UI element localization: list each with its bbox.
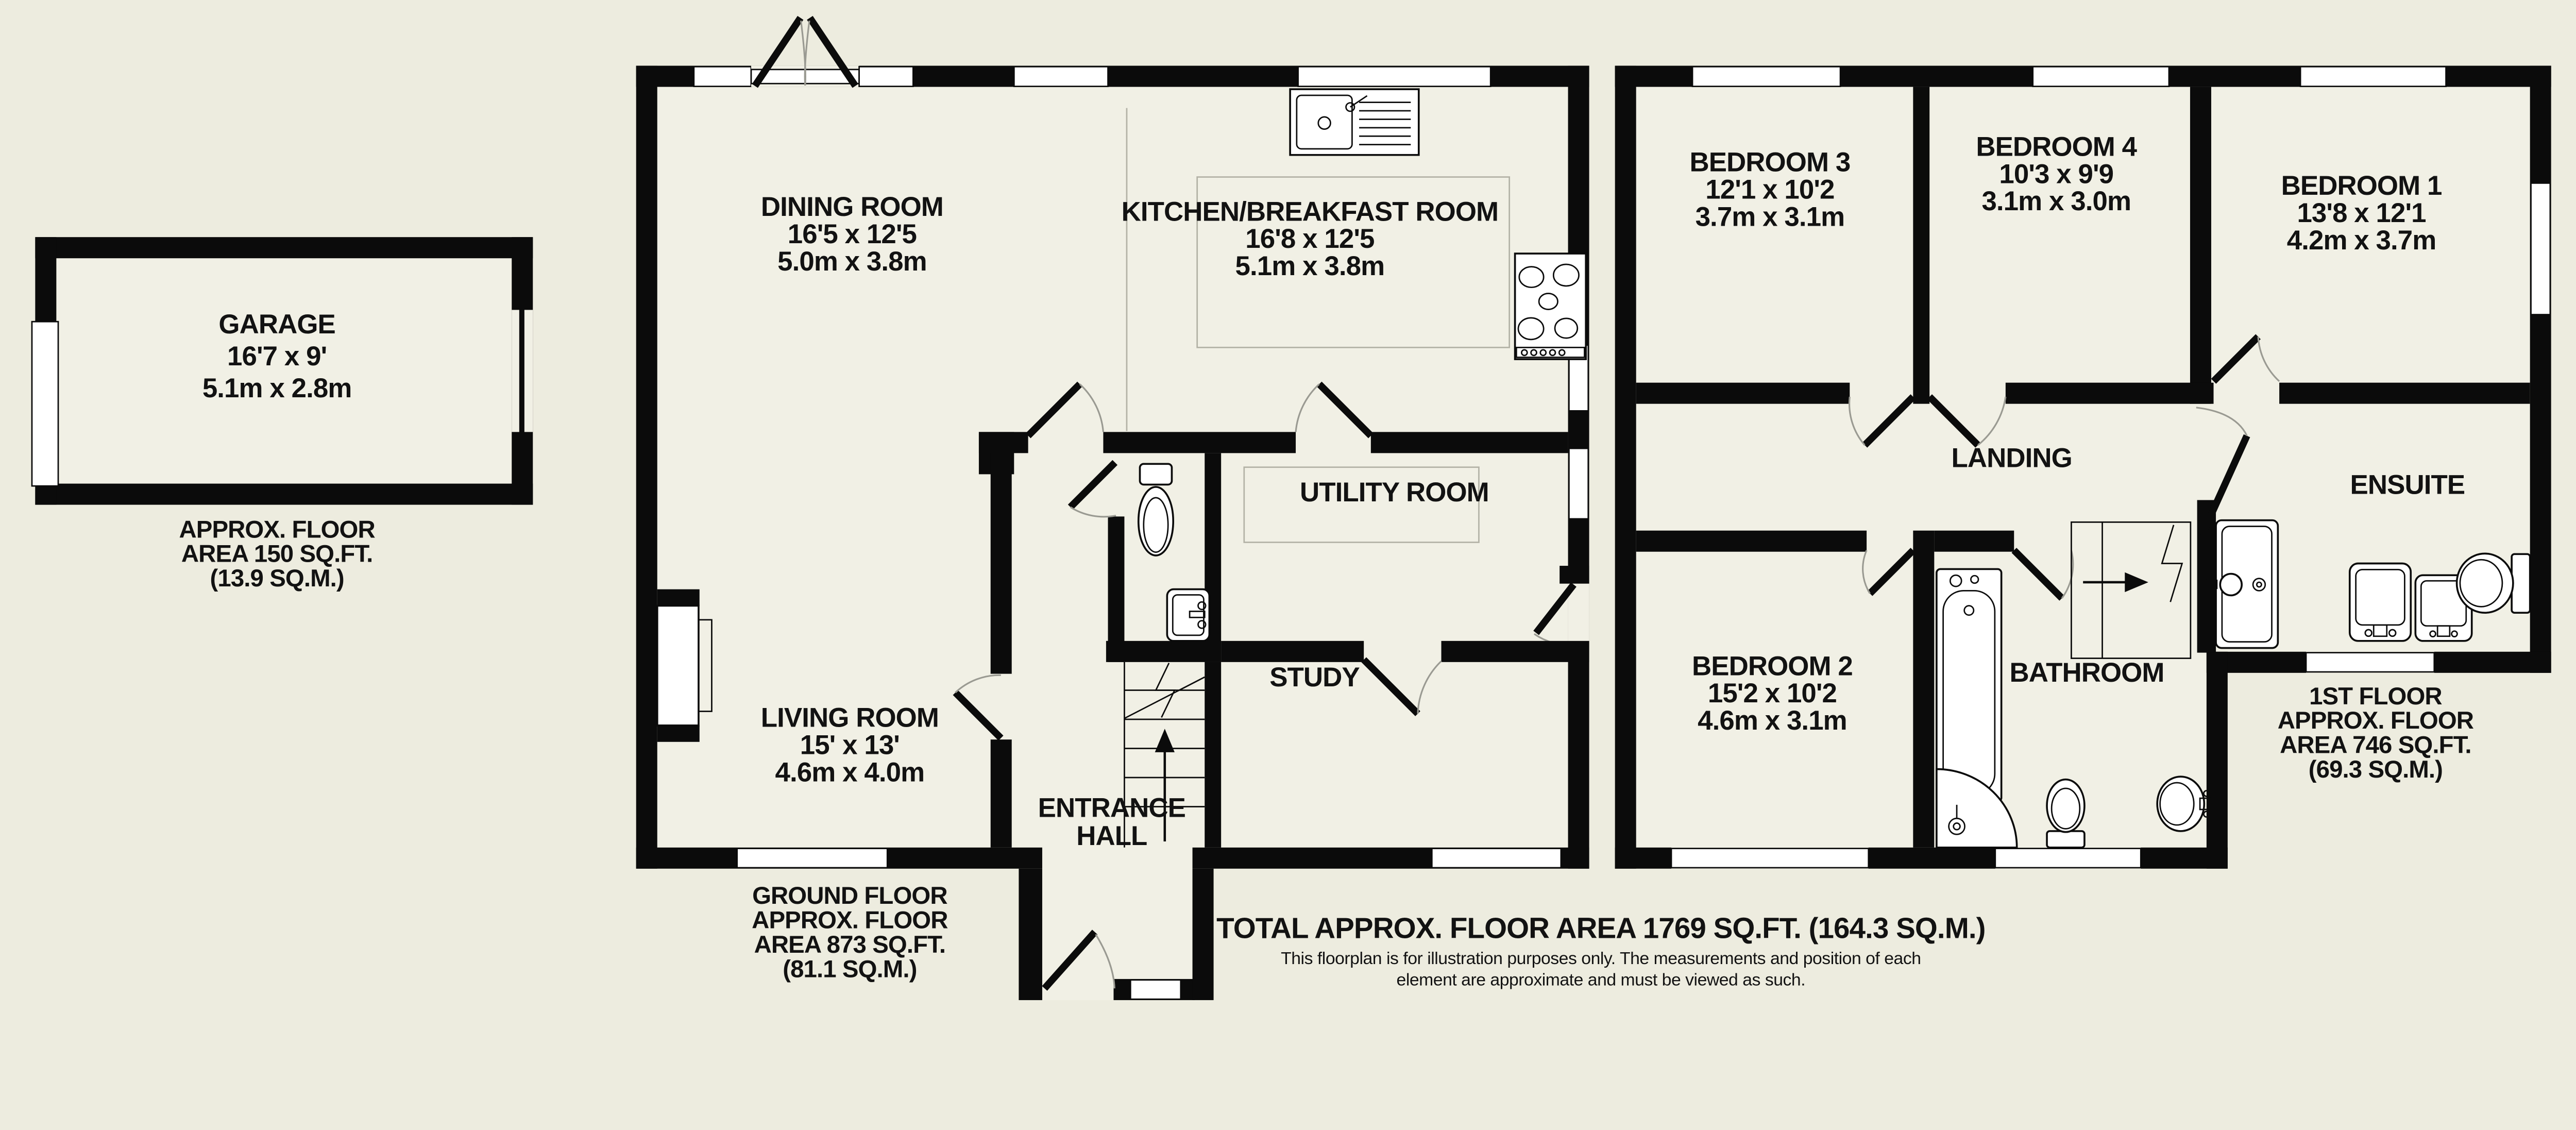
floorplan-page: GARAGE 16'7 x 9' 5.1m x 2.8m APPROX. FLO… — [0, 0, 2576, 1030]
room-label-living: LIVING ROOM — [761, 703, 939, 733]
ff-wall-bottom-left-3 — [2141, 848, 2228, 869]
gf-wall-living-hall-lower — [991, 739, 1012, 848]
gf-wall-living-hall-upper — [991, 453, 1012, 673]
room-label-study: STUDY — [1269, 662, 1360, 693]
living-imperial: 15' x 13' — [800, 730, 900, 760]
garage-wall-top — [35, 237, 533, 258]
bedroom3-imperial: 12'1 x 10'2 — [1705, 174, 1834, 205]
bedroom3-window — [1692, 66, 1840, 86]
gf-note-4: (81.1 SQ.M.) — [783, 955, 917, 983]
basin-icon — [1167, 589, 1209, 641]
dining-imperial: 16'5 x 12'5 — [788, 219, 917, 249]
porch-wall-right — [1193, 869, 1214, 1000]
room-label-ensuite: ENSUITE — [2350, 470, 2465, 500]
bedroom1-metric: 4.2m x 3.7m — [2287, 225, 2436, 256]
wc-wall-bottom — [1106, 641, 1221, 662]
fireplace-cap-top — [657, 589, 700, 606]
bedroom4-metric: 3.1m x 3.0m — [1981, 186, 2131, 216]
garage-wall-bottom — [35, 484, 533, 505]
ground-floor: DINING ROOM 16'5 x 12'5 5.0m x 3.8m KITC… — [636, 18, 1589, 1000]
room-label-bedroom3: BEDROOM 3 — [1689, 147, 1850, 178]
garage: GARAGE 16'7 x 9' 5.1m x 2.8m APPROX. FLO… — [32, 237, 533, 592]
sink-icon — [1290, 89, 1419, 155]
b3-b4-divider — [1913, 87, 1929, 404]
ff-note-1: 1ST FLOOR — [2309, 683, 2442, 710]
ff-wall-step — [2207, 652, 2228, 869]
kitchen-imperial: 16'8 x 12'5 — [1245, 224, 1374, 254]
fireplace-cap-bottom — [657, 726, 700, 742]
gf-note-1: GROUND FLOOR — [752, 882, 947, 909]
study-window — [1432, 849, 1561, 868]
room-label-bathroom: BATHROOM — [2010, 657, 2164, 688]
dining-window-right — [859, 66, 913, 86]
ff-note-4: (69.3 SQ.M.) — [2309, 756, 2443, 783]
bedroom2-window — [1671, 849, 1869, 868]
total-area-text: TOTAL APPROX. FLOOR AREA 1769 SQ.FT. (16… — [1216, 912, 1985, 945]
living-window — [737, 849, 888, 868]
room-label-bedroom4: BEDROOM 4 — [1976, 132, 2137, 162]
garage-door-window — [32, 322, 58, 486]
bedroom1-wall-left — [2190, 87, 2211, 404]
bathroom-toilet-icon — [2047, 780, 2084, 848]
room-label-garage: GARAGE — [218, 309, 335, 340]
bedroom1-window-side — [2531, 183, 2550, 314]
ensuite-window — [2306, 653, 2434, 672]
kitchen-window-top — [1298, 66, 1491, 86]
living-metric: 4.6m x 4.0m — [775, 757, 925, 787]
study-wall-top-left — [1221, 641, 1364, 662]
gf-note-2: APPROX. FLOOR — [752, 907, 948, 934]
ff-wall-left — [1615, 66, 1636, 869]
utility-window-side — [1569, 448, 1588, 519]
gf-wall-dining-1 — [979, 432, 1028, 453]
bedroom4-window — [2033, 66, 2169, 86]
fireplace-breast — [657, 606, 699, 726]
porch-window — [1130, 980, 1181, 999]
hob-icon — [1515, 254, 1586, 359]
room-label-entrance-2: HALL — [1076, 821, 1147, 851]
floorplan-svg: GARAGE 16'7 x 9' 5.1m x 2.8m APPROX. FLO… — [0, 0, 2576, 1030]
wc-wall-left — [1108, 516, 1125, 662]
ff-wall-bottom-right-2 — [2434, 652, 2551, 673]
dining-metric: 5.0m x 3.8m — [777, 246, 927, 277]
ff-wall-bottom-left-1 — [1615, 848, 1671, 869]
room-label-entrance-1: ENTRANCE — [1038, 793, 1185, 823]
bathroom-wall-top — [1934, 531, 2014, 552]
ff-note-2: APPROX. FLOOR — [2278, 707, 2474, 734]
disclaimer-line-2: element are approximate and must be view… — [1397, 970, 1806, 990]
bedroom3-wall-bottom — [1636, 383, 1850, 404]
bedroom1-window-top — [2300, 66, 2446, 86]
bedroom2-wall-top — [1636, 531, 1867, 552]
room-label-dining: DINING ROOM — [761, 192, 943, 222]
garage-note-2: AREA 150 SQ.FT. — [181, 541, 373, 568]
kitchen-window-left — [1014, 66, 1108, 86]
garage-imperial: 16'7 x 9' — [227, 341, 327, 372]
ff-wall-bottom-left-2 — [1869, 848, 1995, 869]
study-wall-top-right — [1442, 641, 1589, 662]
footer: TOTAL APPROX. FLOOR AREA 1769 SQ.FT. (16… — [1216, 912, 1985, 990]
bathroom-window — [1995, 849, 2141, 868]
ff-wall-right — [2530, 66, 2551, 673]
ensuite-toilet-icon — [2457, 553, 2530, 613]
room-label-bedroom1: BEDROOM 1 — [2281, 171, 2442, 201]
shower-icon — [2207, 520, 2278, 648]
garage-wall-right-thin — [519, 308, 524, 434]
room-label-utility: UTILITY ROOM — [1300, 477, 1489, 508]
dining-window-left — [694, 66, 751, 86]
b2-bath-divider — [1913, 531, 1934, 848]
ensuite-basin-icon-1 — [2350, 563, 2411, 640]
room-label-kitchen: KITCHEN/BREAKFAST ROOM — [1122, 196, 1499, 227]
stairs-wall-right — [1205, 662, 1221, 848]
bedroom4-imperial: 10'3 x 9'9 — [1999, 159, 2113, 189]
bedroom1-wall-bottom-1 — [2190, 383, 2214, 404]
first-floor: BEDROOM 3 12'1 x 10'2 3.7m x 3.1m BEDROO… — [1615, 66, 2551, 869]
bedroom3-metric: 3.7m x 3.1m — [1696, 201, 1845, 232]
bedroom2-imperial: 15'2 x 10'2 — [1708, 678, 1837, 709]
bathtub-icon — [1937, 569, 2002, 801]
gf-wall-dining-2 — [1103, 432, 1296, 453]
kitchen-metric: 5.1m x 3.8m — [1235, 251, 1385, 281]
bedroom4-wall-bottom — [2006, 383, 2191, 404]
gf-wall-kitchen-utility — [1371, 432, 1568, 453]
back-door-jamb — [1560, 566, 1589, 584]
ff-note-3: AREA 746 SQ.FT. — [2280, 732, 2471, 759]
disclaimer-line-1: This floorplan is for illustration purpo… — [1281, 949, 1921, 968]
garage-note-3: (13.9 SQ.M.) — [210, 565, 344, 592]
room-label-bedroom2: BEDROOM 2 — [1692, 651, 1853, 681]
garage-metric: 5.1m x 2.8m — [202, 373, 352, 403]
bedroom1-wall-bottom-2 — [2279, 383, 2530, 404]
garage-note-1: APPROX. FLOOR — [179, 516, 375, 543]
porch-wall-left — [1019, 869, 1042, 1000]
gf-wall-left — [636, 66, 657, 869]
toilet-icon — [1139, 464, 1173, 555]
bedroom2-metric: 4.6m x 3.1m — [1698, 705, 1847, 736]
bedroom1-imperial: 13'8 x 12'1 — [2297, 198, 2426, 228]
room-label-landing: LANDING — [1952, 443, 2072, 474]
gf-note-3: AREA 873 SQ.FT. — [754, 931, 946, 958]
